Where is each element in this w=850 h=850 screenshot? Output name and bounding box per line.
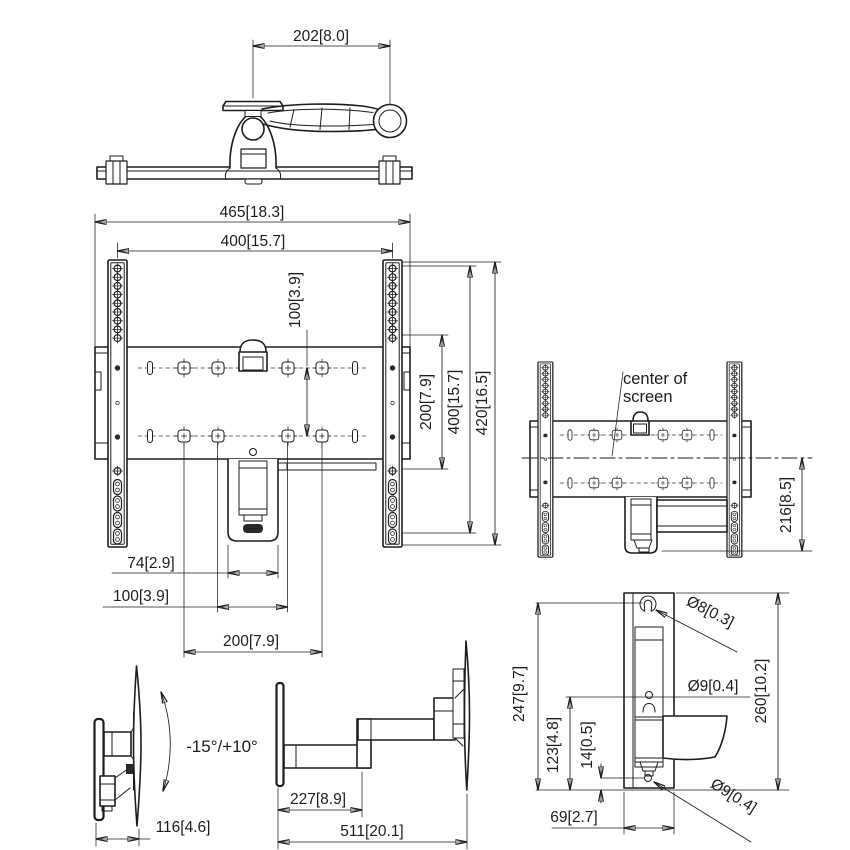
note-center-of-screen-line1: center of bbox=[623, 370, 688, 388]
dim-first-arm: 227[8.9] bbox=[290, 791, 346, 808]
dim-keyhole-height: 247[9.7] bbox=[511, 666, 528, 722]
side-arm-edge bbox=[657, 500, 727, 532]
dim-hole-to-edge: 14[0.5] bbox=[579, 721, 596, 768]
dim-hole-spacing: 123[4.8] bbox=[545, 717, 562, 773]
arm-silhouette bbox=[663, 716, 727, 760]
arm-joint-2 bbox=[434, 698, 455, 740]
dim-center-to-bottom: 216[8.5] bbox=[778, 477, 795, 533]
wall-plate-extended bbox=[277, 683, 284, 786]
dim-depth-folded: 116[4.6] bbox=[156, 819, 211, 836]
side-rail-right bbox=[727, 362, 742, 557]
arm-end-ring bbox=[374, 105, 407, 138]
ball-joint bbox=[242, 118, 264, 140]
hook-dome-small bbox=[633, 412, 648, 421]
tilt-arc-arrow bbox=[161, 692, 170, 791]
arm-edge-on bbox=[278, 463, 376, 470]
dim-bracket-width: 69[2.7] bbox=[550, 809, 597, 826]
dim-overall-height: 260[10.2] bbox=[753, 659, 770, 724]
technical-drawing-page: 202[8.0] 465[18.3] 4 bbox=[0, 0, 850, 850]
dim-max-extension: 511[20.1] bbox=[340, 823, 404, 840]
tilt-view: -15°/+10° 116[4.6] bbox=[95, 666, 258, 846]
end-clamp-left bbox=[106, 161, 127, 184]
dia-keyhole-label: Ø8[0.3] bbox=[684, 593, 737, 631]
note-center-of-screen-line2: screen bbox=[623, 388, 673, 406]
tilt-range-label: -15°/+10° bbox=[186, 737, 258, 756]
dim-overall-width: 465[18.3] bbox=[220, 204, 285, 221]
top-view: 202[8.0] bbox=[97, 28, 412, 184]
wall-bracket-view: 247[9.7] 123[4.8] 14[0.5] 69[2.7] 260[10… bbox=[511, 593, 789, 842]
extended-arm-view: 227[8.9] 511[20.1] bbox=[277, 641, 470, 849]
hook-dome bbox=[240, 340, 266, 352]
dim-hole-gap-100: 100[3.9] bbox=[113, 588, 169, 605]
vesa-rail-right bbox=[383, 260, 402, 547]
end-clamp-right bbox=[379, 161, 400, 184]
extension-lines bbox=[253, 40, 390, 104]
dim-rail-span-200: 200[7.9] bbox=[418, 374, 435, 430]
dim-arm-offset: 202[8.0] bbox=[293, 28, 349, 45]
screen-plate-side bbox=[134, 666, 142, 826]
dim-vesa-height: 400[15.7] bbox=[446, 370, 463, 435]
dim-hole-row-gap: 100[3.9] bbox=[287, 272, 304, 328]
dim-bracket-width: 74[2.9] bbox=[127, 555, 174, 572]
dia-hole-bottom-label: Ø9[0.4] bbox=[707, 776, 759, 817]
screen-plate-extended bbox=[465, 641, 470, 790]
arm-segment-2 bbox=[358, 719, 434, 740]
dim-overall-height: 420[16.5] bbox=[474, 371, 491, 436]
pivot-bracket bbox=[228, 459, 278, 541]
side-rail-left bbox=[538, 362, 553, 557]
dia-hole-mid-label: Ø9[0.4] bbox=[688, 678, 739, 695]
dim-vesa-width: 400[15.7] bbox=[221, 233, 286, 250]
side-view: center of screen 216[8.5] bbox=[522, 362, 812, 557]
vesa-rail-left bbox=[108, 260, 127, 547]
side-pivot-bracket bbox=[625, 497, 657, 553]
wall-bar-top bbox=[97, 167, 412, 179]
dim-hole-span-200: 200[7.9] bbox=[223, 633, 279, 650]
wall-mount-dimensional-drawing: 202[8.0] 465[18.3] 4 bbox=[0, 0, 850, 850]
front-view: 465[18.3] 400[15.7] 100[3.9] bbox=[95, 204, 501, 657]
